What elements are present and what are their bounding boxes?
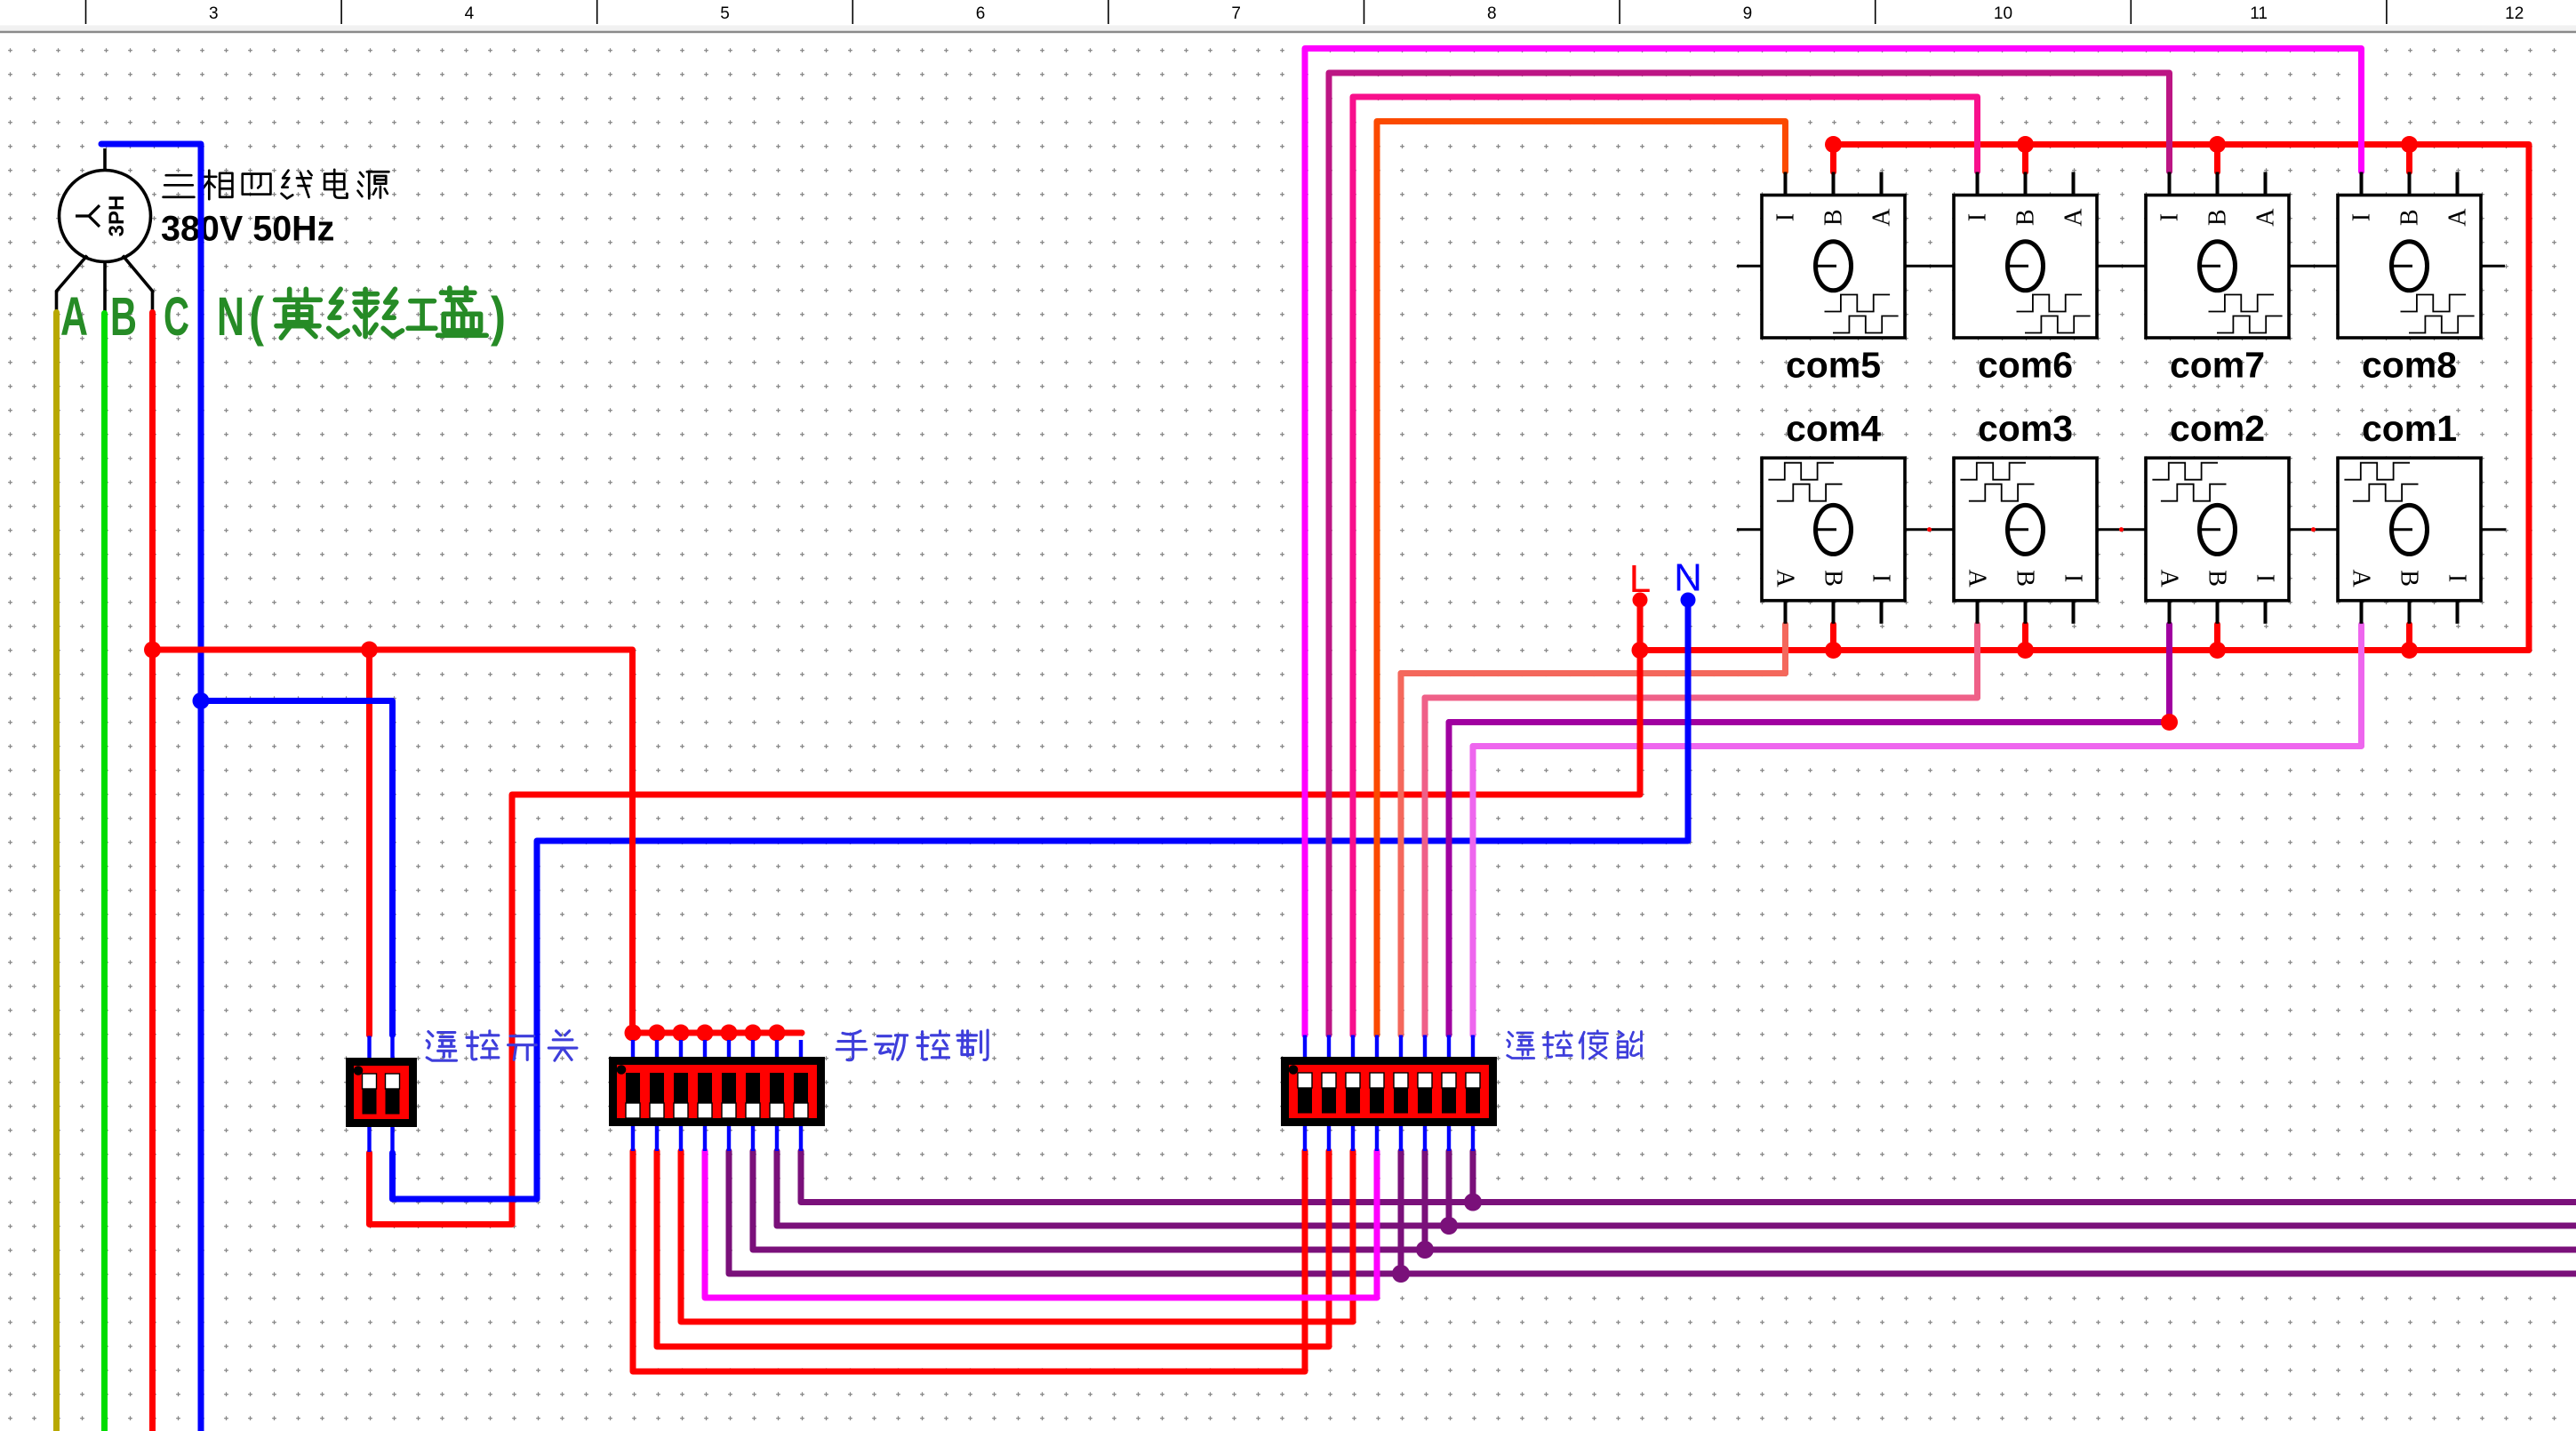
svg-text:N: N — [217, 286, 244, 347]
svg-text:B: B — [2012, 209, 2040, 226]
svg-text:B: B — [2204, 570, 2231, 587]
svg-text:11: 11 — [2250, 4, 2268, 23]
svg-text:A: A — [2060, 208, 2088, 227]
svg-text:I: I — [2252, 574, 2279, 582]
svg-text:A: A — [1772, 569, 1799, 588]
svg-text:B: B — [2396, 209, 2424, 226]
svg-text:A: A — [1964, 569, 1991, 588]
svg-text:com7: com7 — [2170, 345, 2265, 386]
svg-text:A: A — [2252, 208, 2280, 227]
svg-text:A: A — [2348, 569, 2375, 588]
svg-text:380V 50Hz: 380V 50Hz — [161, 210, 334, 249]
svg-text:A: A — [2156, 569, 2183, 588]
svg-text:I: I — [1772, 213, 1800, 221]
svg-text:A: A — [60, 286, 88, 347]
svg-text:B: B — [1820, 209, 1848, 226]
svg-text:4: 4 — [465, 4, 475, 23]
svg-text:com5: com5 — [1786, 345, 1881, 386]
svg-text:): ) — [491, 286, 506, 347]
svg-text:I: I — [2060, 574, 2087, 582]
svg-text:com4: com4 — [1786, 408, 1881, 449]
svg-text:com3: com3 — [1978, 408, 2073, 449]
svg-text:(: ( — [249, 286, 265, 347]
svg-text:5: 5 — [720, 4, 730, 23]
svg-text:B: B — [2396, 570, 2423, 587]
svg-text:I: I — [2444, 574, 2471, 582]
svg-text:7: 7 — [1231, 4, 1241, 23]
svg-text:B: B — [110, 286, 137, 347]
svg-text:10: 10 — [1994, 4, 2012, 23]
svg-text:12: 12 — [2505, 4, 2524, 23]
svg-text:3PH: 3PH — [105, 196, 129, 237]
svg-text:B: B — [2204, 209, 2232, 226]
svg-text:com6: com6 — [1978, 345, 2073, 386]
svg-text:6: 6 — [976, 4, 986, 23]
svg-text:N: N — [1674, 556, 1702, 600]
svg-text:I: I — [2156, 213, 2184, 221]
svg-text:C: C — [164, 286, 189, 347]
svg-text:B: B — [2012, 570, 2039, 587]
svg-text:L: L — [1629, 557, 1651, 601]
svg-text:I: I — [1868, 574, 1895, 582]
svg-text:8: 8 — [1487, 4, 1497, 23]
svg-text:I: I — [1964, 213, 1992, 221]
svg-text:B: B — [1820, 570, 1847, 587]
svg-text:A: A — [1868, 208, 1896, 227]
svg-text:com2: com2 — [2170, 408, 2265, 449]
svg-text:I: I — [2348, 213, 2376, 221]
svg-text:A: A — [2444, 208, 2472, 227]
svg-text:3: 3 — [209, 4, 219, 23]
svg-text:9: 9 — [1743, 4, 1753, 23]
svg-text:com8: com8 — [2362, 345, 2457, 386]
svg-text:com1: com1 — [2362, 408, 2457, 449]
